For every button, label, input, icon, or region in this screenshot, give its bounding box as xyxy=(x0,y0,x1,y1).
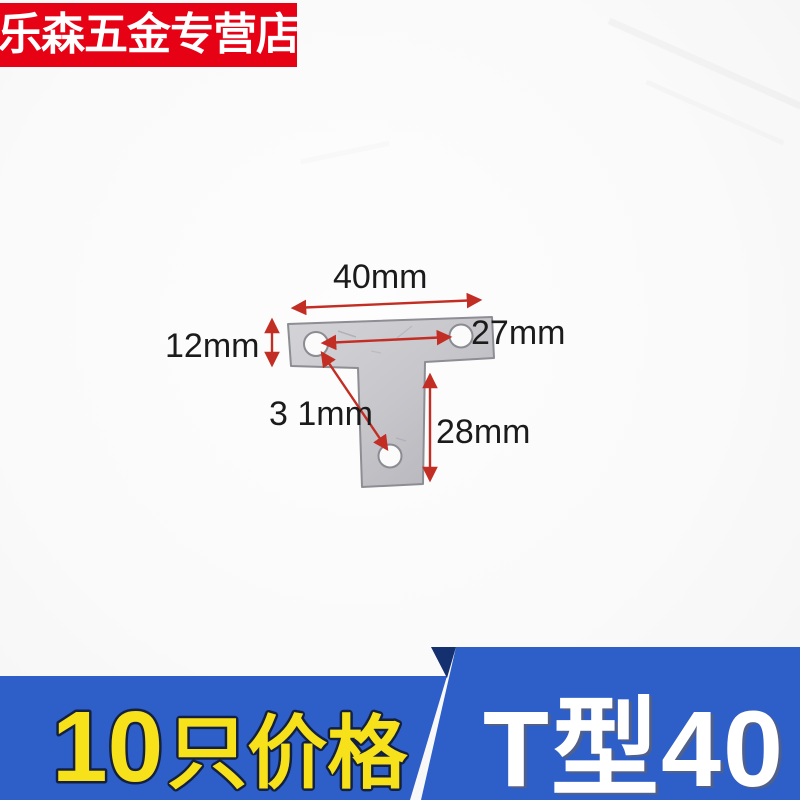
bottom-left-banner: 10只价格 xyxy=(0,676,447,800)
dimension-label-diagonal: 3 1mm xyxy=(269,397,373,431)
banner-number: 10 xyxy=(52,691,163,800)
bottom-right-banner-text: T型40 xyxy=(483,688,785,800)
dimension-label-top-width: 40mm xyxy=(333,260,427,294)
bottom-right-banner: T型40 T型40 xyxy=(421,647,800,800)
diagram-canvas: 10只价格 T型40 T型40 xyxy=(0,0,800,800)
dimension-label-stem-height: 28mm xyxy=(436,415,530,449)
dimension-label-left-height: 12mm xyxy=(165,329,259,363)
screw-hole-right xyxy=(450,325,473,348)
arrow-top-width-40mm xyxy=(293,300,480,308)
screw-hole-bottom xyxy=(379,445,402,468)
banner-suffix: 只价格 xyxy=(167,709,408,798)
dimension-label-hole-distance: 27mm xyxy=(471,316,565,350)
product-image: 乐森五金专营店 xyxy=(0,0,800,800)
